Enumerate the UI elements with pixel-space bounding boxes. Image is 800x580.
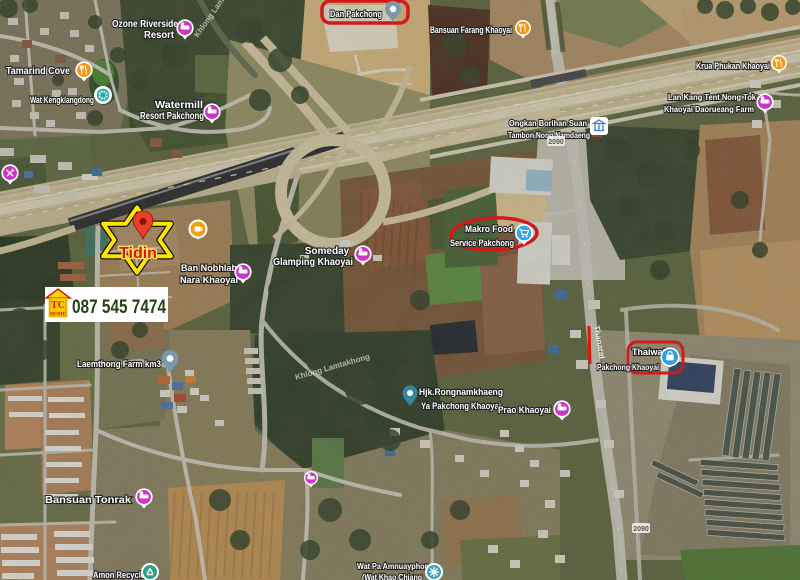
svg-text:Khaoyai Daorueang Farm: Khaoyai Daorueang Farm xyxy=(664,104,754,114)
svg-text:Hjk.Rongnamkhaeng: Hjk.Rongnamkhaeng xyxy=(419,387,503,397)
svg-text:Resort: Resort xyxy=(144,30,175,41)
svg-text:2090: 2090 xyxy=(548,139,564,146)
svg-text:Krua Phukan Khaoyai: Krua Phukan Khaoyai xyxy=(696,61,770,71)
svg-text:TC: TC xyxy=(51,300,65,311)
svg-text:Tidin: Tidin xyxy=(119,245,157,262)
svg-text:HOME: HOME xyxy=(50,313,66,318)
svg-text:Bansuan Tonrak: Bansuan Tonrak xyxy=(45,494,131,506)
svg-text:Ban Nobhlab: Ban Nobhlab xyxy=(181,263,238,273)
svg-text:Wat Kengklangdong: Wat Kengklangdong xyxy=(30,95,94,105)
svg-text:2090: 2090 xyxy=(633,526,649,533)
svg-text:Makro Food: Makro Food xyxy=(465,224,513,235)
svg-text:Wat Pa Amnuayphon: Wat Pa Amnuayphon xyxy=(357,561,429,571)
svg-text:(Wat Khao Chiang: (Wat Khao Chiang xyxy=(362,572,422,580)
svg-text:Prao Khaoyai: Prao Khaoyai xyxy=(498,405,551,415)
svg-text:Resort Pakchong: Resort Pakchong xyxy=(140,111,204,122)
svg-text:Ongkan Borihan Suan: Ongkan Borihan Suan xyxy=(509,118,587,128)
svg-text:Lan Kang Tent Nong Tok: Lan Kang Tent Nong Tok xyxy=(668,92,756,102)
svg-text:Thaiwat: Thaiwat xyxy=(632,347,666,357)
svg-text:Laemthong Farm km3: Laemthong Farm km3 xyxy=(77,359,161,370)
svg-text:Amon Recycle: Amon Recycle xyxy=(93,570,145,580)
svg-text:Glamping Khaoyai: Glamping Khaoyai xyxy=(273,257,353,268)
svg-text:087 545 7474: 087 545 7474 xyxy=(72,297,166,318)
svg-text:Ya Pakchong Khaoyai: Ya Pakchong Khaoyai xyxy=(421,401,501,411)
svg-text:Nara Khaoyai: Nara Khaoyai xyxy=(180,275,238,285)
svg-text:Ozone Riverside: Ozone Riverside xyxy=(112,19,178,30)
svg-text:Bansuan Farang Khaoyai: Bansuan Farang Khaoyai xyxy=(430,25,512,35)
svg-text:Watermill: Watermill xyxy=(155,100,203,111)
svg-text:Someday: Someday xyxy=(305,246,350,257)
svg-text:Tamarind Cove: Tamarind Cove xyxy=(6,65,70,77)
svg-text:Dan Pakchong: Dan Pakchong xyxy=(330,9,382,20)
svg-text:Pakchong Khaoyai: Pakchong Khaoyai xyxy=(597,362,659,372)
svg-text:Service Pakchong: Service Pakchong xyxy=(450,238,514,249)
